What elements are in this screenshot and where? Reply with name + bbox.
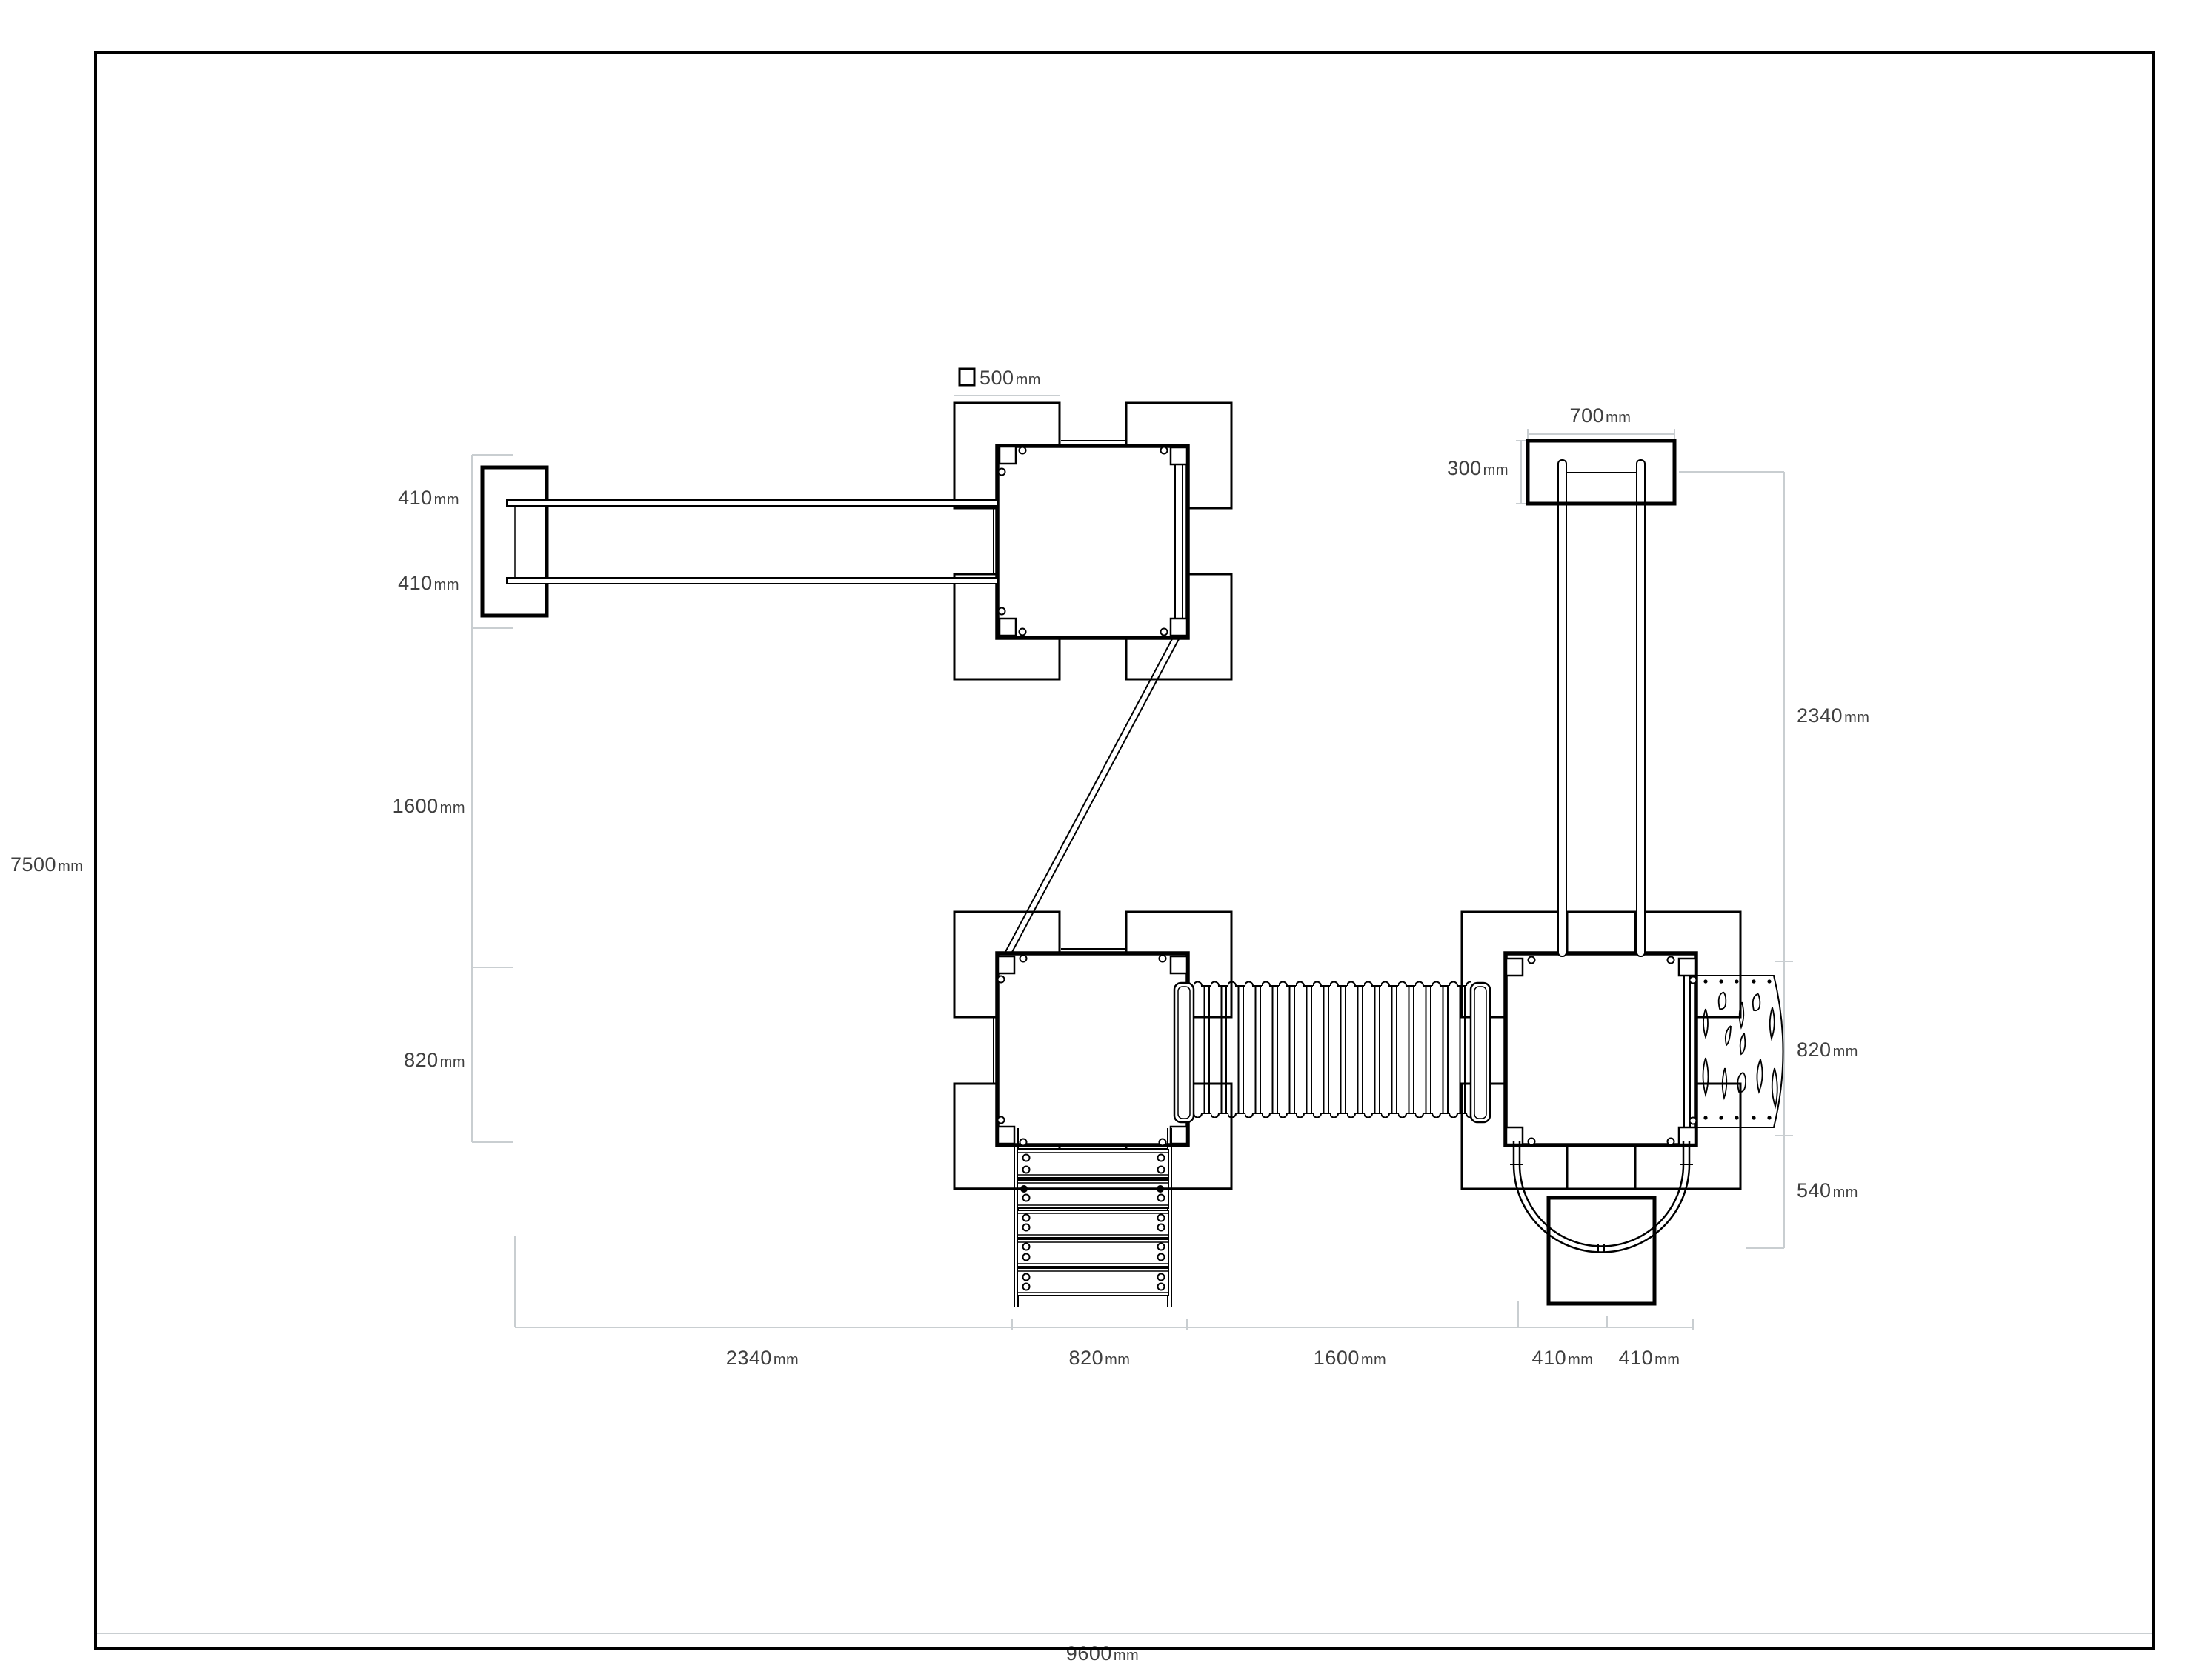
bolt [1020,1139,1027,1146]
rail-bar [507,500,997,506]
slide-dots [1703,979,1771,1119]
entry-box [1549,1198,1654,1304]
ladder-step [1017,1210,1168,1238]
play-structure [482,403,1783,1307]
bolt [1160,1139,1166,1146]
dim-right-540: 540mm [1797,1179,1858,1201]
diagonal-pole [1005,635,1180,955]
post-cap [1000,619,1016,636]
bolt [1158,1224,1165,1231]
tunnel-flange-right [1471,983,1490,1122]
ladder-step [1017,1268,1168,1296]
pole-line [1005,635,1174,952]
climbing-arch [1510,1141,1693,1304]
bolt [1023,1167,1030,1173]
bolt [1158,1254,1165,1261]
post-cap [1000,447,1016,464]
bolt [1023,1274,1030,1281]
post-cap [998,1127,1014,1144]
bolt [999,608,1005,615]
dim-bottom-410-b: 410mm [1619,1347,1680,1369]
dim-top-700: 700mm [1570,404,1632,427]
dim-right-820: 820mm [1797,1039,1858,1061]
tower-a-platform [997,446,1188,638]
dim-left-1600: 1600mm [393,795,465,817]
dim-overall-width: 9600mm [1066,1642,1139,1664]
bolt [1161,447,1168,454]
bolt [1023,1195,1030,1201]
post-cap [1171,956,1187,973]
bolt [1020,956,1027,962]
bolt [1023,1284,1030,1290]
bolt [1668,957,1674,964]
bolt [998,976,1005,983]
dim-right-2340: 2340mm [1797,704,1869,727]
post-cap [1679,959,1695,976]
bolt [1158,1215,1165,1221]
bolt [1158,1244,1165,1250]
arch-outer [1514,1164,1689,1253]
bolt [1158,1284,1165,1290]
slide-support-rail [1637,460,1645,956]
bolt [1158,1274,1165,1281]
rail-bar [507,578,997,584]
dim-left-410-bottom: 410mm [398,572,459,594]
bolt [1160,956,1166,962]
bolt [1023,1224,1030,1231]
dim-left-820: 820mm [404,1049,465,1071]
post-cap [1506,959,1523,976]
bolt [1158,1195,1165,1201]
dim-top-300: 300mm [1447,457,1509,479]
crawl-tunnel [1174,981,1490,1122]
bolt [1023,1215,1030,1221]
ladder-step [1017,1180,1168,1208]
monkey-bars [482,467,997,616]
dim-left-410-top: 410mm [398,487,459,509]
ladder-step [1017,1150,1168,1178]
bolt [1690,1118,1697,1124]
dim-bottom-1600: 1600mm [1314,1347,1386,1369]
bolt [1023,1244,1030,1250]
bolt [1023,1254,1030,1261]
tunnel-flange-left [1174,983,1194,1122]
arch-inner [1520,1164,1683,1247]
bolt [1529,1139,1535,1145]
drawing-border [96,53,2154,1648]
bolt [1020,447,1026,454]
tunnel-corrugation [1194,981,1471,1118]
bolt [998,1117,1005,1124]
bolt [1023,1155,1030,1161]
bolt [1690,977,1697,984]
dim-bottom-2340: 2340mm [726,1347,799,1369]
pole-line [1011,638,1180,955]
slide-support-rail [1558,460,1566,956]
bolt [1529,957,1535,964]
ladder-step [1017,1239,1168,1267]
bolt [999,469,1005,476]
bolt [1158,1167,1165,1173]
legend-label: 500mm [980,367,1041,389]
square-icon [960,369,974,385]
bolt [1020,629,1026,636]
bolt [1668,1139,1674,1145]
legend: 500mm [960,367,1041,389]
ladder [954,1128,1231,1307]
tower-b-platform [997,953,1188,1145]
dim-bottom-410-a: 410mm [1532,1347,1594,1369]
bolt [1158,1155,1165,1161]
dim-bottom-820: 820mm [1069,1347,1131,1369]
bolt-filled [1157,1185,1164,1193]
post-cap [1171,619,1187,636]
post-cap [1679,1127,1695,1144]
playground-plan-drawing: 500mm 410mm 410mm 1600mm 820mm 7500mm 70… [0,0,2205,1680]
bolt [1161,629,1168,636]
post-cap [1171,1127,1187,1144]
bolt-filled [1020,1185,1028,1193]
post-cap [1171,447,1187,464]
post-cap [998,956,1014,973]
dim-overall-height: 7500mm [10,853,83,876]
tower-c-platform [1506,953,1696,1145]
